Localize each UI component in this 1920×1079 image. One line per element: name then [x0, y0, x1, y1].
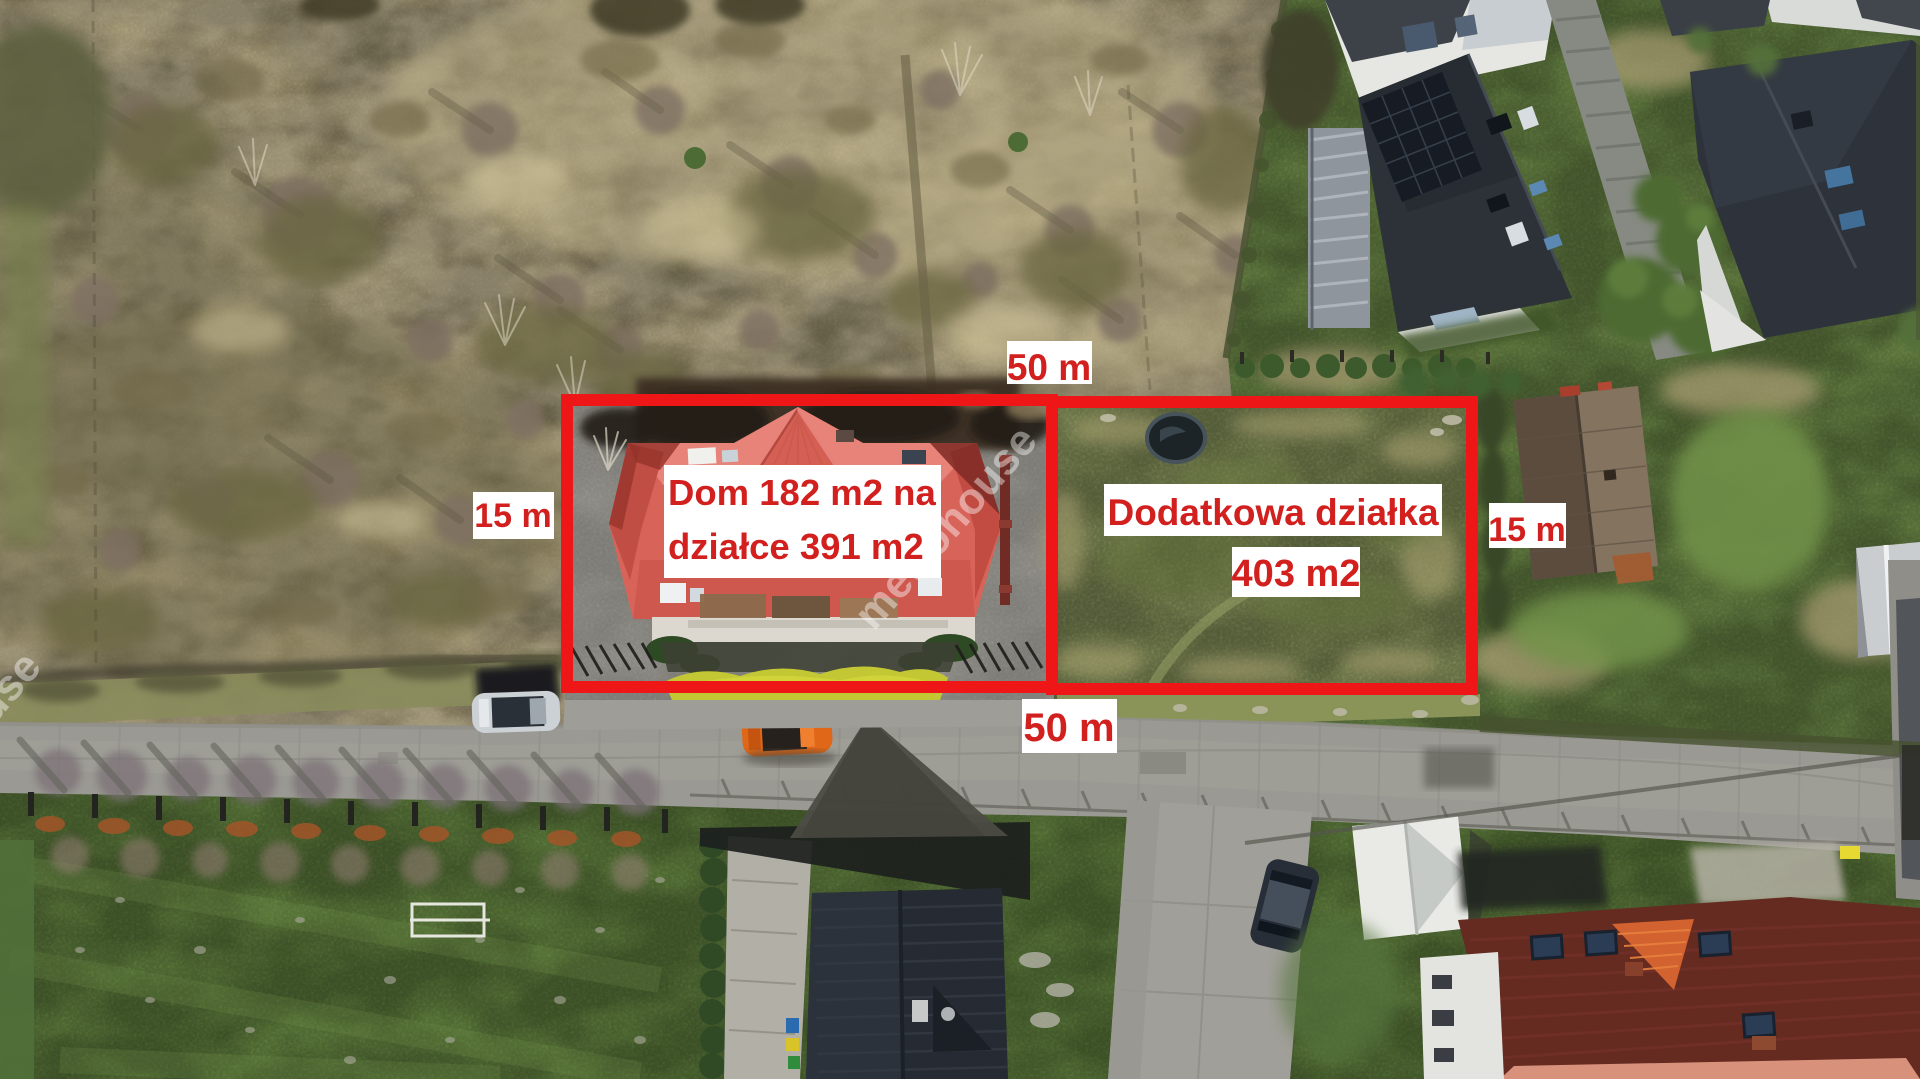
svg-text:50 m: 50 m — [1007, 347, 1091, 388]
svg-text:15 m: 15 m — [474, 497, 552, 535]
svg-text:działce 391 m2: działce 391 m2 — [668, 526, 924, 567]
svg-text:Dodatkowa działka: Dodatkowa działka — [1107, 492, 1438, 533]
svg-text:Dom 182 m2 na: Dom 182 m2 na — [668, 472, 936, 513]
svg-text:50 m: 50 m — [1023, 706, 1114, 750]
svg-text:403 m2: 403 m2 — [1232, 553, 1361, 595]
svg-text:15 m: 15 m — [1488, 511, 1566, 549]
